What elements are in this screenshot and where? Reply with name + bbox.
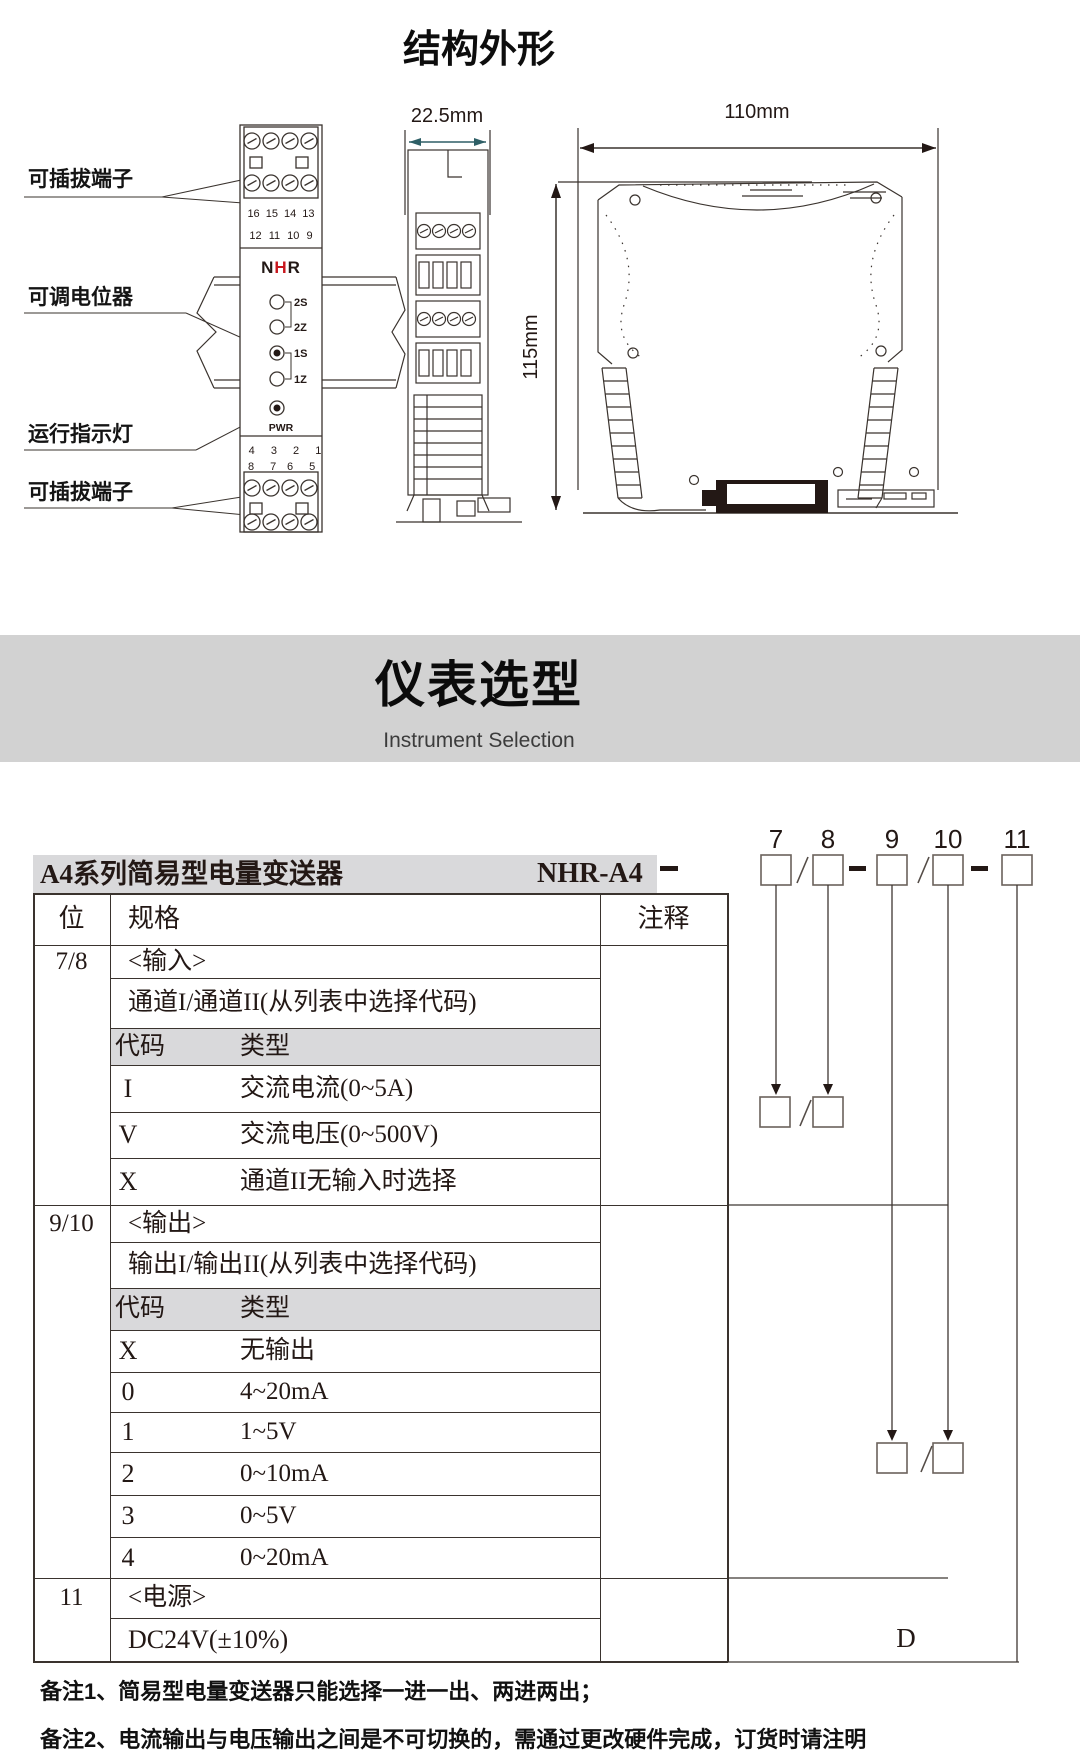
pot-label-1z: 1Z bbox=[294, 374, 307, 386]
nhr-logo: NHR bbox=[261, 258, 301, 277]
note-1: 备注1、简易型电量变送器只能选择一进一出、两进两出； bbox=[40, 1674, 602, 1706]
row-code: 1 bbox=[103, 1412, 153, 1452]
row-code: 4 bbox=[103, 1537, 153, 1578]
digit-label-8: 8 bbox=[821, 824, 835, 854]
side-view bbox=[396, 130, 522, 522]
structure-section-title: 结构外形 bbox=[0, 18, 958, 73]
pwr-label: PWR bbox=[269, 422, 294, 434]
section-desc-input: 通道I/通道II(从列表中选择代码) bbox=[128, 978, 477, 1028]
section-pos-78: 7/8 bbox=[33, 945, 110, 978]
selection-banner: 仪表选型 Instrument Selection bbox=[0, 635, 1080, 762]
section-desc-power: DC24V(±10%) bbox=[128, 1618, 288, 1661]
digit-label-10: 10 bbox=[934, 824, 963, 854]
din-clip bbox=[702, 480, 828, 513]
datasheet-page: 结构外形 可插拔端子 可调电位器 运行指示灯 可插拔端子 bbox=[0, 0, 1080, 1754]
drop-arrowheads bbox=[771, 1084, 953, 1441]
row-type: 交流电流(0~5A) bbox=[240, 1065, 413, 1112]
row-type: 4~20mA bbox=[240, 1372, 329, 1412]
code-boxes bbox=[760, 855, 1032, 1473]
power-code-d: D bbox=[896, 1623, 916, 1653]
pot-label-1s: 1S bbox=[294, 348, 307, 360]
terminal-numbers-top-1: 16 15 14 13 bbox=[247, 208, 314, 220]
pot-label-2z: 2Z bbox=[294, 322, 307, 334]
section-desc-output: 输出I/输出II(从列表中选择代码) bbox=[128, 1242, 477, 1288]
dim-height: 115mm bbox=[520, 314, 542, 379]
section-pos-910: 9/10 bbox=[33, 1205, 110, 1242]
col-header-spec: 规格 bbox=[128, 893, 180, 945]
type-header-output: 类型 bbox=[240, 1288, 290, 1330]
row-type: 1~5V bbox=[240, 1412, 297, 1452]
dim-length: 110mm bbox=[724, 101, 789, 123]
col-header-pos: 位 bbox=[33, 893, 110, 945]
note-2: 备注2、电流输出与电压输出之间是不可切换的，需通过更改硬件完成，订货时请注明 bbox=[40, 1722, 866, 1754]
col-header-note: 注释 bbox=[600, 893, 727, 945]
code-header-bg-input bbox=[110, 1028, 600, 1065]
section-pos-11: 11 bbox=[33, 1578, 110, 1618]
type-header-input: 类型 bbox=[240, 1028, 290, 1065]
width-dimension-arrow bbox=[409, 138, 486, 146]
code-header-output: 代码 bbox=[115, 1288, 165, 1330]
row-code: X bbox=[103, 1158, 153, 1205]
row-code: 3 bbox=[103, 1495, 153, 1537]
structure-drawing: 16 15 14 13 12 11 10 9 NHR 2S 2Z 1S 1Z P… bbox=[0, 70, 1080, 636]
row-code: X bbox=[103, 1330, 153, 1372]
row-type: 无输出 bbox=[240, 1330, 315, 1372]
code-header-input: 代码 bbox=[115, 1028, 165, 1065]
product-name: A4系列简易型电量变送器 bbox=[40, 857, 343, 891]
digit-label-11: 11 bbox=[1004, 824, 1031, 854]
row-type: 通道II无输入时选择 bbox=[240, 1158, 457, 1205]
model-prefix: NHR-A4 bbox=[537, 855, 643, 893]
row-type: 0~10mA bbox=[240, 1452, 329, 1495]
code-slashes bbox=[797, 857, 932, 1472]
profile-view bbox=[551, 128, 958, 513]
section-name-input: <输入> bbox=[128, 945, 206, 978]
code-header-bg-output bbox=[110, 1288, 600, 1330]
row-type: 交流电压(0~500V) bbox=[240, 1112, 438, 1158]
row-code: I bbox=[103, 1065, 153, 1112]
row-code: 2 bbox=[103, 1452, 153, 1495]
section-name-power: <电源> bbox=[128, 1578, 206, 1618]
selection-subtitle: Instrument Selection bbox=[0, 729, 958, 753]
row-code: V bbox=[103, 1112, 153, 1158]
selection-title: 仪表选型 bbox=[0, 645, 958, 717]
row-type: 0~20mA bbox=[240, 1537, 329, 1578]
drop-lines bbox=[728, 885, 1019, 1662]
terminal-numbers-bottom-red: 8 7 bbox=[248, 461, 276, 473]
terminal-numbers-top-2: 12 11 10 9 bbox=[249, 230, 312, 242]
terminal-numbers-bottom-black: 6 5 bbox=[287, 461, 315, 473]
ordering-table: A4系列简易型电量变送器 NHR-A4 位 规格 注释 bbox=[33, 855, 729, 1665]
row-type: 0~5V bbox=[240, 1495, 297, 1537]
pot-label-2s: 2S bbox=[294, 297, 307, 309]
section-name-output: <输出> bbox=[128, 1205, 206, 1242]
digit-label-9: 9 bbox=[885, 824, 899, 854]
dim-width: 22.5mm bbox=[411, 105, 483, 127]
row-code: 0 bbox=[103, 1372, 153, 1412]
digit-label-7: 7 bbox=[769, 824, 783, 854]
terminal-numbers-bottom-1: 4 3 2 1 bbox=[249, 445, 322, 457]
